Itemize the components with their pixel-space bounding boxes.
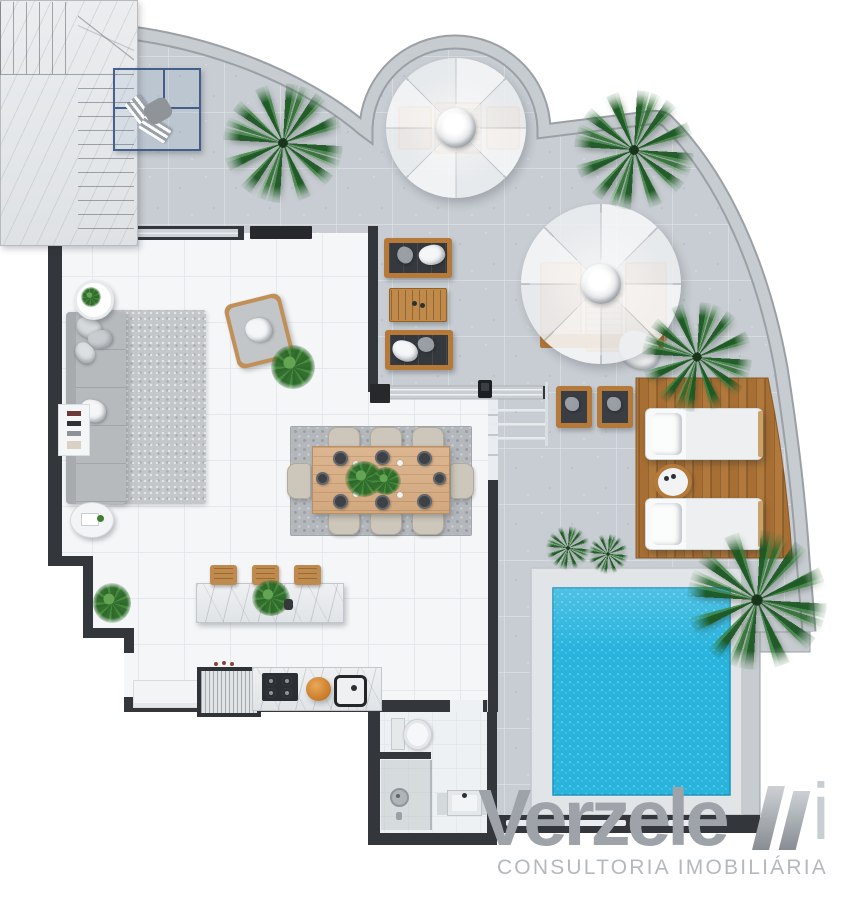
pillow xyxy=(390,338,420,364)
burner xyxy=(266,676,276,686)
books xyxy=(67,411,81,416)
palm-shrub xyxy=(588,534,628,574)
shower-glass xyxy=(430,760,432,830)
dining-chair xyxy=(287,463,311,499)
sun-lounger xyxy=(645,408,763,460)
deck-armchair xyxy=(556,386,592,428)
side-table xyxy=(70,502,114,538)
shower-head xyxy=(390,788,409,807)
faucet xyxy=(462,793,467,798)
bathroom-partition xyxy=(377,752,431,759)
outdoor-loveseat xyxy=(385,330,453,370)
palm-tree xyxy=(223,83,343,203)
stair-landing xyxy=(78,2,134,74)
island-faucet xyxy=(284,599,293,610)
floor-plan-render: Verzele i CONSULTORIA IMOBILIÁRIA xyxy=(0,0,855,900)
faucet xyxy=(351,685,357,691)
dining-chair xyxy=(370,512,402,535)
bar-stool xyxy=(294,565,321,585)
bathroom-sink xyxy=(447,790,482,816)
potted-plant xyxy=(93,583,131,623)
dining-table xyxy=(312,446,450,514)
palm-tree xyxy=(687,530,827,670)
console-shelf xyxy=(58,404,90,456)
kitchen-cabinet xyxy=(133,680,205,708)
deck-armchair xyxy=(597,386,633,428)
parasol-centerpiece xyxy=(436,108,476,148)
brand-mark: i xyxy=(760,786,855,852)
brand-logo: Verzele i CONSULTORIA IMOBILIÁRIA xyxy=(478,782,855,882)
stair-flight-lower xyxy=(78,74,134,242)
door-mat xyxy=(250,226,312,239)
kitchen-sink xyxy=(334,675,367,707)
logo-bar-icon xyxy=(779,791,811,850)
dining-chair xyxy=(328,512,360,535)
side-table-round xyxy=(654,464,692,500)
palm-tree xyxy=(642,302,752,412)
brand-mark-i: i xyxy=(812,780,830,844)
pillow xyxy=(417,241,448,268)
toilet xyxy=(403,719,432,750)
palm-shrub xyxy=(546,526,590,570)
palm-tree xyxy=(574,90,694,210)
door-mat xyxy=(370,384,390,403)
parasol-centerpiece xyxy=(581,264,621,304)
dining-chair xyxy=(412,512,444,535)
outdoor-loveseat xyxy=(384,238,452,278)
coffee-table xyxy=(389,288,447,322)
brand-tagline: CONSULTORIA IMOBILIÁRIA xyxy=(478,856,828,880)
stair-flight-upper xyxy=(0,2,78,74)
fruit-bowl xyxy=(306,677,331,701)
potted-plant xyxy=(271,345,315,389)
cups xyxy=(412,301,417,306)
brand-wordmark: Verzele xyxy=(478,782,726,854)
planter-round xyxy=(74,280,114,320)
bar-stool xyxy=(210,565,237,585)
dining-chair xyxy=(450,463,474,499)
staircase xyxy=(0,0,138,246)
island-plant xyxy=(252,580,290,616)
place-setting xyxy=(333,451,348,466)
cooktop xyxy=(262,673,298,701)
